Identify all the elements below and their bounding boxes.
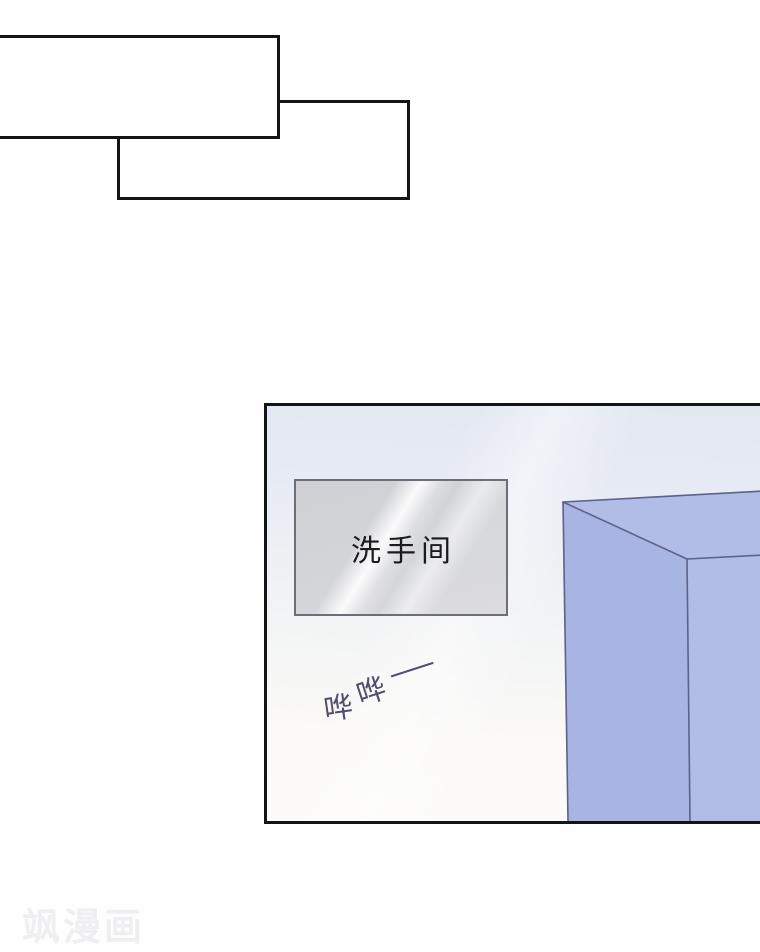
speech-bubble-empty-1	[0, 35, 280, 139]
restroom-sign-label: 洗手间	[351, 526, 456, 570]
site-watermark: 飒漫画	[22, 896, 145, 951]
restroom-sign: 洗手间	[294, 479, 508, 616]
comic-panel: 洗手间 哗哗—	[264, 403, 760, 824]
